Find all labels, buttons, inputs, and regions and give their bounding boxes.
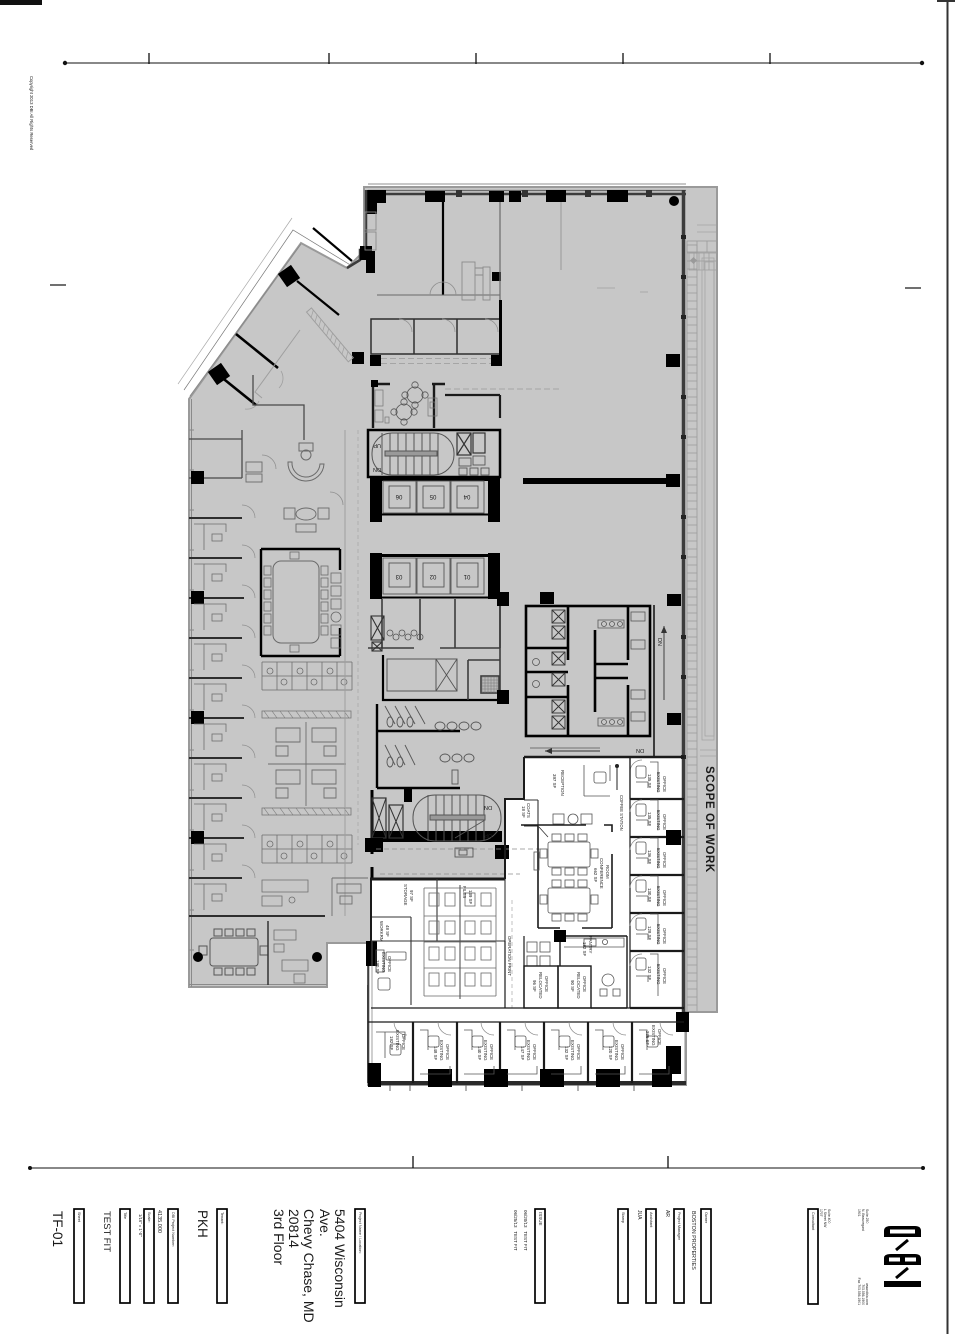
svg-text:136 SF: 136 SF: [647, 850, 652, 864]
svg-text:190 SF: 190 SF: [375, 960, 380, 974]
svg-text:OFFICE: OFFICE: [662, 776, 667, 792]
svg-text:EXISTING: EXISTING: [656, 848, 661, 869]
svg-text:132 SF: 132 SF: [564, 1046, 569, 1060]
svg-text:PKH: PKH: [195, 1210, 210, 1238]
svg-text:DN: DN: [484, 804, 492, 810]
svg-text:OFFICE: OFFICE: [544, 976, 549, 992]
svg-text:Fax 703.556.1901: Fax 703.556.1901: [857, 1278, 861, 1305]
svg-text:182 SF: 182 SF: [389, 1036, 394, 1050]
svg-text:TF-01: TF-01: [50, 1211, 65, 1247]
svg-text:Suite 250: Suite 250: [865, 1209, 869, 1223]
svg-text:BOSTON PROPERTIES: BOSTON PROPERTIES: [690, 1211, 696, 1270]
svg-text:20814: 20814: [286, 1209, 302, 1248]
svg-text:EXISTING: EXISTING: [651, 1025, 656, 1046]
svg-text:Scale:: Scale:: [147, 1212, 151, 1223]
svg-text:OFFICE: OFFICE: [662, 928, 667, 944]
svg-text:PANTRY: PANTRY: [588, 936, 593, 953]
svg-text:18 SF: 18 SF: [521, 806, 526, 818]
svg-text:RECEPTION: RECEPTION: [560, 770, 565, 796]
svg-text:05: 05: [429, 493, 436, 499]
svg-text:ROOM: ROOM: [605, 865, 610, 879]
svg-text:EXISTING: EXISTING: [439, 1040, 444, 1061]
svg-text:Owner: Owner: [704, 1212, 708, 1224]
svg-text:N. Beauregard: N. Beauregard: [861, 1209, 865, 1231]
svg-text:235 SF: 235 SF: [645, 1031, 650, 1045]
svg-text:Chevy Chase, MD: Chevy Chase, MD: [301, 1209, 317, 1323]
svg-text:EXISTING: EXISTING: [570, 1040, 575, 1061]
svg-text:WORKRM: WORKRM: [379, 921, 384, 942]
svg-text:Consultant: Consultant: [811, 1212, 815, 1231]
svg-text:5404 Wisconsin: 5404 Wisconsin: [332, 1209, 348, 1308]
svg-text:1901: 1901: [857, 1209, 861, 1217]
svg-text:06/20/13 TEST FIT: 06/20/13 TEST FIT: [523, 1210, 528, 1251]
svg-text:Tenant:: Tenant:: [220, 1212, 224, 1224]
svg-text:135 SF: 135 SF: [647, 812, 652, 826]
svg-text:EXISTING: EXISTING: [656, 772, 661, 793]
svg-text:OFFICE: OFFICE: [576, 1044, 581, 1060]
svg-text:EXISTING: EXISTING: [395, 1030, 400, 1051]
svg-text:JUA: JUA: [636, 1210, 642, 1220]
svg-text:EXISTING: EXISTING: [483, 1040, 488, 1061]
svg-text:Ave.: Ave.: [317, 1209, 333, 1237]
svg-text:DBI Project Number:: DBI Project Number:: [171, 1212, 175, 1247]
svg-text:RELOCATED: RELOCATED: [576, 972, 581, 999]
svg-text:EXISTING: EXISTING: [656, 924, 661, 945]
svg-text:OFFICE: OFFICE: [532, 1044, 537, 1060]
svg-text:OFFICE: OFFICE: [657, 1029, 662, 1045]
svg-text:Copyright 2013 DBI All Rights: Copyright 2013 DBI All Rights Reserved: [29, 76, 34, 151]
svg-text:01: 01: [463, 573, 470, 579]
svg-text:1707: 1707: [819, 1209, 823, 1217]
svg-text:Sheet: Sheet: [77, 1212, 81, 1223]
svg-text:4135.000: 4135.000: [156, 1210, 162, 1233]
svg-text:Assistant: Assistant: [649, 1212, 653, 1228]
svg-text:662 SF: 662 SF: [593, 868, 598, 882]
svg-text:ISSUE: ISSUE: [538, 1212, 543, 1226]
svg-text:OFFICE: OFFICE: [662, 814, 667, 830]
svg-text:SCOPE OF WORK: SCOPE OF WORK: [703, 766, 715, 873]
svg-text:397 SF: 397 SF: [552, 774, 557, 788]
svg-text:140 SF: 140 SF: [477, 1046, 482, 1060]
svg-text:Project Manager: Project Manager: [677, 1212, 681, 1241]
svg-text:EXISTING: EXISTING: [656, 886, 661, 907]
svg-text:COFFEE STATION: COFFEE STATION: [619, 795, 624, 831]
svg-text:EXISTING: EXISTING: [656, 964, 661, 985]
svg-text:OFFICE: OFFICE: [489, 1044, 494, 1060]
svg-text:OFFICE: OFFICE: [387, 956, 392, 972]
svg-text:03: 03: [395, 573, 402, 579]
svg-text:EXISTING: EXISTING: [526, 1040, 531, 1061]
svg-text:3rd Floor: 3rd Floor: [271, 1209, 287, 1265]
svg-text:139 SF: 139 SF: [468, 890, 473, 904]
svg-text:Suite 400: Suite 400: [827, 1209, 831, 1223]
svg-text:www.dbia.com: www.dbia.com: [865, 1283, 869, 1305]
svg-text:UP: UP: [373, 442, 381, 448]
svg-text:Title: Title: [123, 1212, 127, 1219]
svg-text:AR: AR: [664, 1210, 670, 1217]
svg-text:TEST FIT: TEST FIT: [101, 1211, 112, 1252]
svg-text:DN: DN: [636, 747, 644, 753]
svg-text:EXISTING: EXISTING: [381, 952, 386, 973]
svg-text:OFFICE: OFFICE: [620, 1044, 625, 1060]
svg-text:06: 06: [395, 493, 402, 499]
svg-text:STORAGE: STORAGE: [403, 884, 408, 905]
svg-text:OFFICE: OFFICE: [582, 976, 587, 992]
svg-text:48 SF: 48 SF: [385, 925, 390, 937]
svg-text:182 SF: 182 SF: [582, 942, 587, 956]
svg-text:OFFICE: OFFICE: [662, 890, 667, 906]
svg-text:148 SF: 148 SF: [433, 1046, 438, 1060]
svg-text:CONFERENCE: CONFERENCE: [599, 858, 604, 889]
svg-text:147 SF: 147 SF: [520, 1046, 525, 1060]
svg-text:OFFICE: OFFICE: [662, 968, 667, 984]
svg-text:L Street NW: L Street NW: [823, 1209, 827, 1228]
svg-text:130 SF: 130 SF: [647, 888, 652, 902]
svg-text:06/25/13 TEST FIT: 06/25/13 TEST FIT: [513, 1210, 518, 1251]
svg-text:120 SF: 120 SF: [608, 1046, 613, 1060]
svg-text:UP: UP: [484, 832, 492, 838]
svg-text:04: 04: [463, 493, 470, 499]
svg-text:EXISTING: EXISTING: [656, 810, 661, 831]
svg-text:FILES: FILES: [462, 886, 467, 898]
svg-text:90 SF: 90 SF: [570, 980, 575, 992]
svg-text:OPERATION PRINT: OPERATION PRINT: [507, 936, 512, 976]
svg-text:96 SF: 96 SF: [532, 980, 537, 992]
svg-text:OFFICE: OFFICE: [445, 1044, 450, 1060]
svg-text:OFFICE: OFFICE: [662, 852, 667, 868]
svg-text:DN: DN: [656, 638, 662, 646]
svg-text:EXISTING: EXISTING: [614, 1040, 619, 1061]
svg-text:135 SF: 135 SF: [647, 774, 652, 788]
svg-text:128 SF: 128 SF: [647, 926, 652, 940]
svg-text:Stamp: Stamp: [621, 1212, 625, 1223]
svg-text:02: 02: [429, 573, 436, 579]
svg-text:1/16" = 1'-0": 1/16" = 1'-0": [138, 1214, 143, 1237]
svg-text:703.556.1900: 703.556.1900: [861, 1284, 865, 1305]
svg-text:DN: DN: [373, 466, 381, 472]
svg-text:OFFICE: OFFICE: [401, 1034, 406, 1050]
svg-text:RELOCATED: RELOCATED: [538, 972, 543, 999]
svg-text:132 SF: 132 SF: [647, 966, 652, 980]
svg-text:Project Name / Location:: Project Name / Location:: [358, 1212, 362, 1254]
svg-text:97 SF: 97 SF: [409, 890, 414, 902]
